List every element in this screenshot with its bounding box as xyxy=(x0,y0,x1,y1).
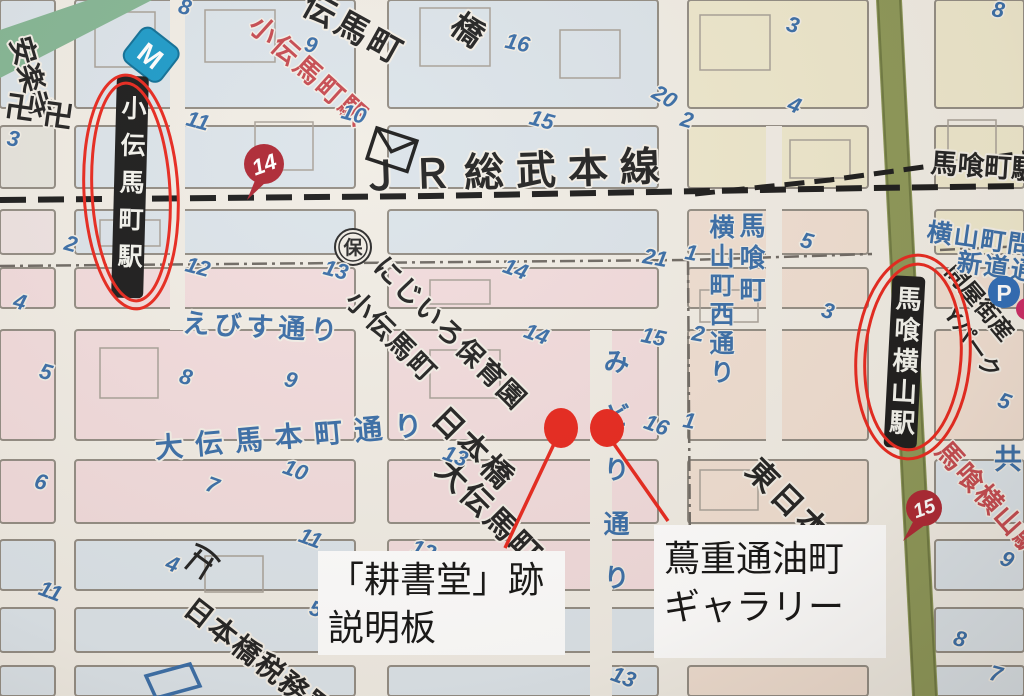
station-badge-14: 14 xyxy=(244,144,284,200)
manji-icon: 卍 xyxy=(41,98,75,135)
kyo-label: 共 xyxy=(986,444,1024,472)
kodenmacho-station-bar: 小伝馬町駅 xyxy=(111,76,149,299)
lot-number: 21 xyxy=(640,243,669,272)
map-photo: ＪＲ総武本線 馬喰町駅 小伝馬町駅 馬喰横山駅 安楽寺 卍 卍 伝馬町 橋 にじ… xyxy=(0,0,1024,696)
bakurocho-vertical-label: 馬喰町 xyxy=(733,212,770,308)
lot-number: 10 xyxy=(339,99,370,130)
midori-dori-label: みどり通り xyxy=(597,348,634,618)
koshodo-callout-line2: 説明板 xyxy=(328,604,555,652)
tsutaju-callout-line2: ギャラリー xyxy=(664,583,876,631)
koshodo-callout-line1: 「耕書堂」跡 xyxy=(328,556,555,604)
svg-text:保: 保 xyxy=(342,236,363,259)
koshodo-callout-box: 「耕書堂」跡 説明板 xyxy=(318,551,565,655)
lot-number: 15 xyxy=(639,322,669,352)
svg-text:P: P xyxy=(996,280,1011,306)
bakuroyokoyama-station-bar: 馬喰横山駅 xyxy=(884,275,926,448)
lot-number: 1 xyxy=(683,239,699,266)
manji-icon: 卍 xyxy=(3,90,37,127)
tsutaju-callout-box: 蔦重通油町 ギャラリー xyxy=(654,525,886,658)
tsutaju-callout-line1: 蔦重通油町 xyxy=(664,535,876,583)
